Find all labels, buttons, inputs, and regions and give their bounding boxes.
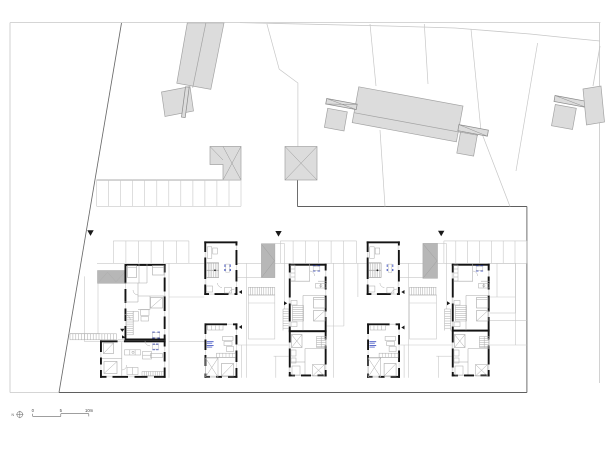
svg-text:10m: 10m (85, 408, 94, 413)
